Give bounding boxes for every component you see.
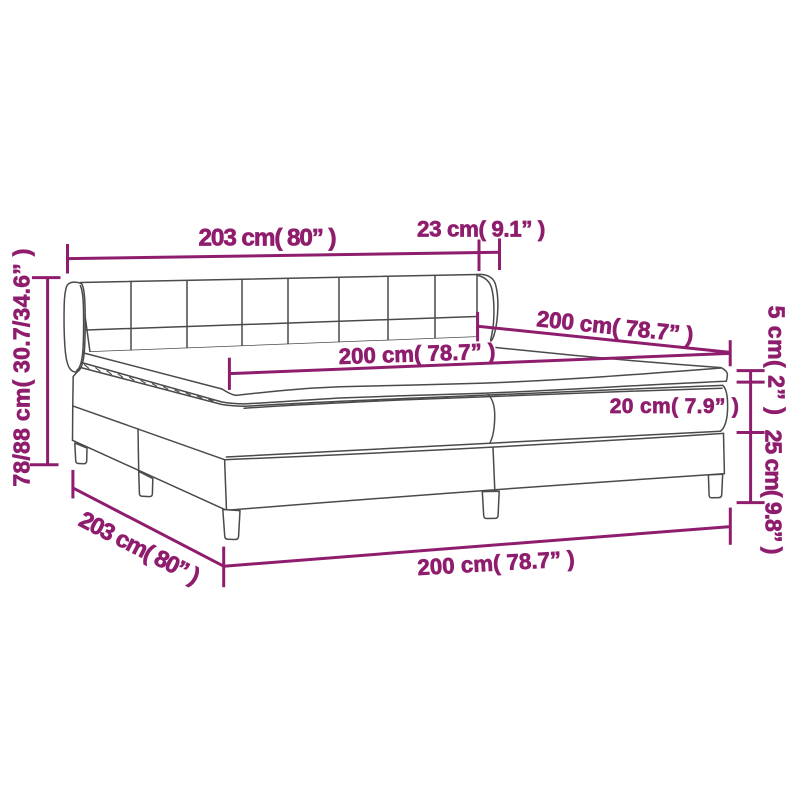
svg-text:23 cm( 9.1” ): 23 cm( 9.1” ): [417, 216, 545, 241]
svg-text:5 cm( 2” ): 5 cm( 2” ): [764, 306, 790, 416]
svg-text:203 cm( 80” ): 203 cm( 80” ): [199, 225, 336, 252]
svg-text:20 cm( 7.9” ): 20 cm( 7.9” ): [610, 395, 739, 418]
svg-text:25 cm( 9.8” ): 25 cm( 9.8” ): [760, 430, 786, 554]
svg-text:78/88 cm( 30.7/34.6” ): 78/88 cm( 30.7/34.6” ): [8, 248, 34, 486]
